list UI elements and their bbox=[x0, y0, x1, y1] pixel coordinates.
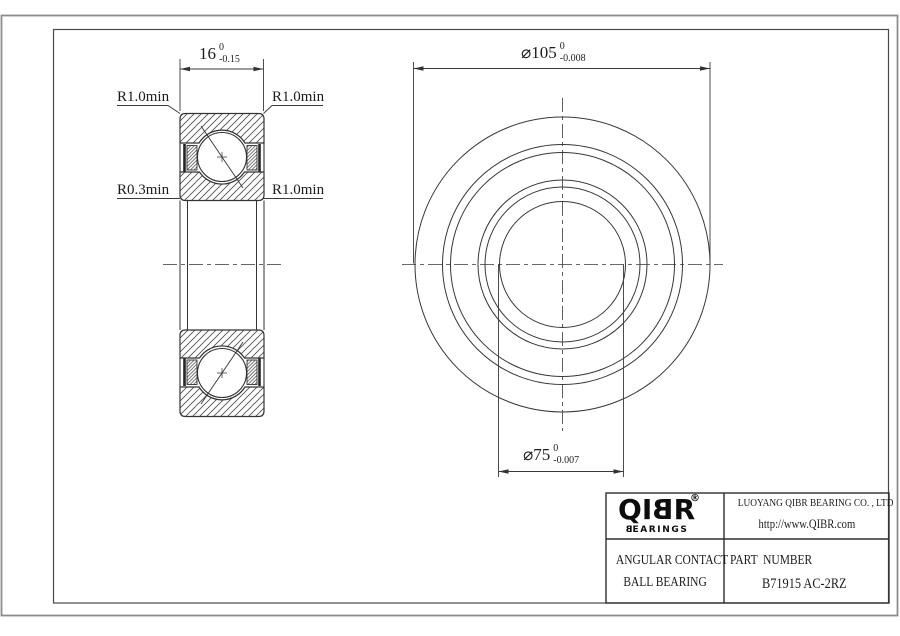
arrow-left bbox=[180, 67, 190, 72]
tolerance-upper: 0 bbox=[560, 42, 586, 52]
dim-width-tolerance: 0 -0.15 bbox=[219, 43, 240, 65]
dim-bore-value: ⌀75 bbox=[523, 446, 550, 463]
leader-top-left bbox=[117, 106, 180, 114]
radius-label-bottom-right: R1.0min bbox=[272, 183, 324, 198]
radius-label-top-right: R1.0min bbox=[272, 90, 324, 105]
seal-right-top bbox=[247, 146, 257, 171]
dim-od-extension-lines bbox=[414, 62, 711, 264]
dim-bore-tolerance: 0 -0.007 bbox=[553, 444, 579, 466]
logo-subtitle-mirrored-b: B bbox=[624, 525, 632, 535]
product-type-line1: ANGULAR CONTACT bbox=[606, 552, 724, 568]
radius-label-top-left: R1.0min bbox=[117, 90, 169, 105]
registered-trademark-icon: ® bbox=[690, 493, 700, 504]
seal-right-bottom bbox=[247, 360, 257, 385]
leader-top-right bbox=[264, 106, 324, 114]
logo-subtitle-rest: EARINGS bbox=[632, 525, 688, 535]
arrow-left bbox=[414, 66, 424, 71]
dim-od-text: ⌀105 0 -0.008 bbox=[521, 42, 586, 64]
seal-left-top bbox=[187, 146, 197, 171]
seal-left-bottom bbox=[187, 360, 197, 385]
part-number-value: B71915 AC-2RZ bbox=[762, 576, 862, 593]
tolerance-upper: 0 bbox=[219, 43, 240, 53]
tolerance-lower: -0.15 bbox=[219, 55, 240, 65]
dim-width-value: 16 bbox=[199, 45, 216, 62]
tolerance-lower: -0.008 bbox=[560, 54, 586, 64]
arrow-left bbox=[499, 469, 509, 474]
tolerance-upper: 0 bbox=[553, 444, 579, 454]
part-number-label: PART NUMBER bbox=[730, 552, 827, 568]
section-view bbox=[163, 114, 281, 417]
arrow-right bbox=[700, 66, 710, 71]
seal-lip-left-top bbox=[183, 144, 186, 172]
dim-width-extension-lines bbox=[180, 59, 264, 111]
product-type-line2: BALL BEARING bbox=[606, 574, 724, 590]
seal-lip-right-bottom bbox=[258, 359, 261, 387]
drawing-sheet: 16 0 -0.15 ⌀105 0 -0.008 ⌀75 0 -0.007 R1… bbox=[0, 0, 900, 636]
company-website: http://www.QIBR.com bbox=[724, 517, 889, 532]
dim-width-text: 16 0 -0.15 bbox=[199, 43, 240, 65]
logo-letter-mirrored-b: B bbox=[652, 496, 673, 524]
qibr-logo: QIBR bbox=[618, 496, 695, 524]
dim-width-lines bbox=[180, 59, 264, 111]
dim-bore-text: ⌀75 0 -0.007 bbox=[523, 444, 579, 466]
arrow-right bbox=[254, 67, 264, 72]
dim-od-tolerance: 0 -0.008 bbox=[560, 42, 586, 64]
dim-od-value: ⌀105 bbox=[521, 44, 557, 61]
logo-subtitle: BEARINGS bbox=[624, 525, 688, 535]
company-name: LUOYANG QIBR BEARING CO. , LTD bbox=[724, 497, 889, 509]
arrow-right bbox=[614, 469, 624, 474]
dim-od-lines bbox=[414, 62, 711, 264]
seal-lip-right-top bbox=[258, 144, 261, 172]
logo-letter: Q bbox=[618, 493, 642, 526]
bore-lines bbox=[180, 201, 264, 331]
logo-letter: I bbox=[642, 493, 652, 526]
seal-lip-left-bottom bbox=[183, 359, 186, 387]
radius-label-bottom-left: R0.3min bbox=[117, 183, 169, 198]
tolerance-lower: -0.007 bbox=[553, 456, 579, 466]
front-view bbox=[402, 98, 723, 431]
